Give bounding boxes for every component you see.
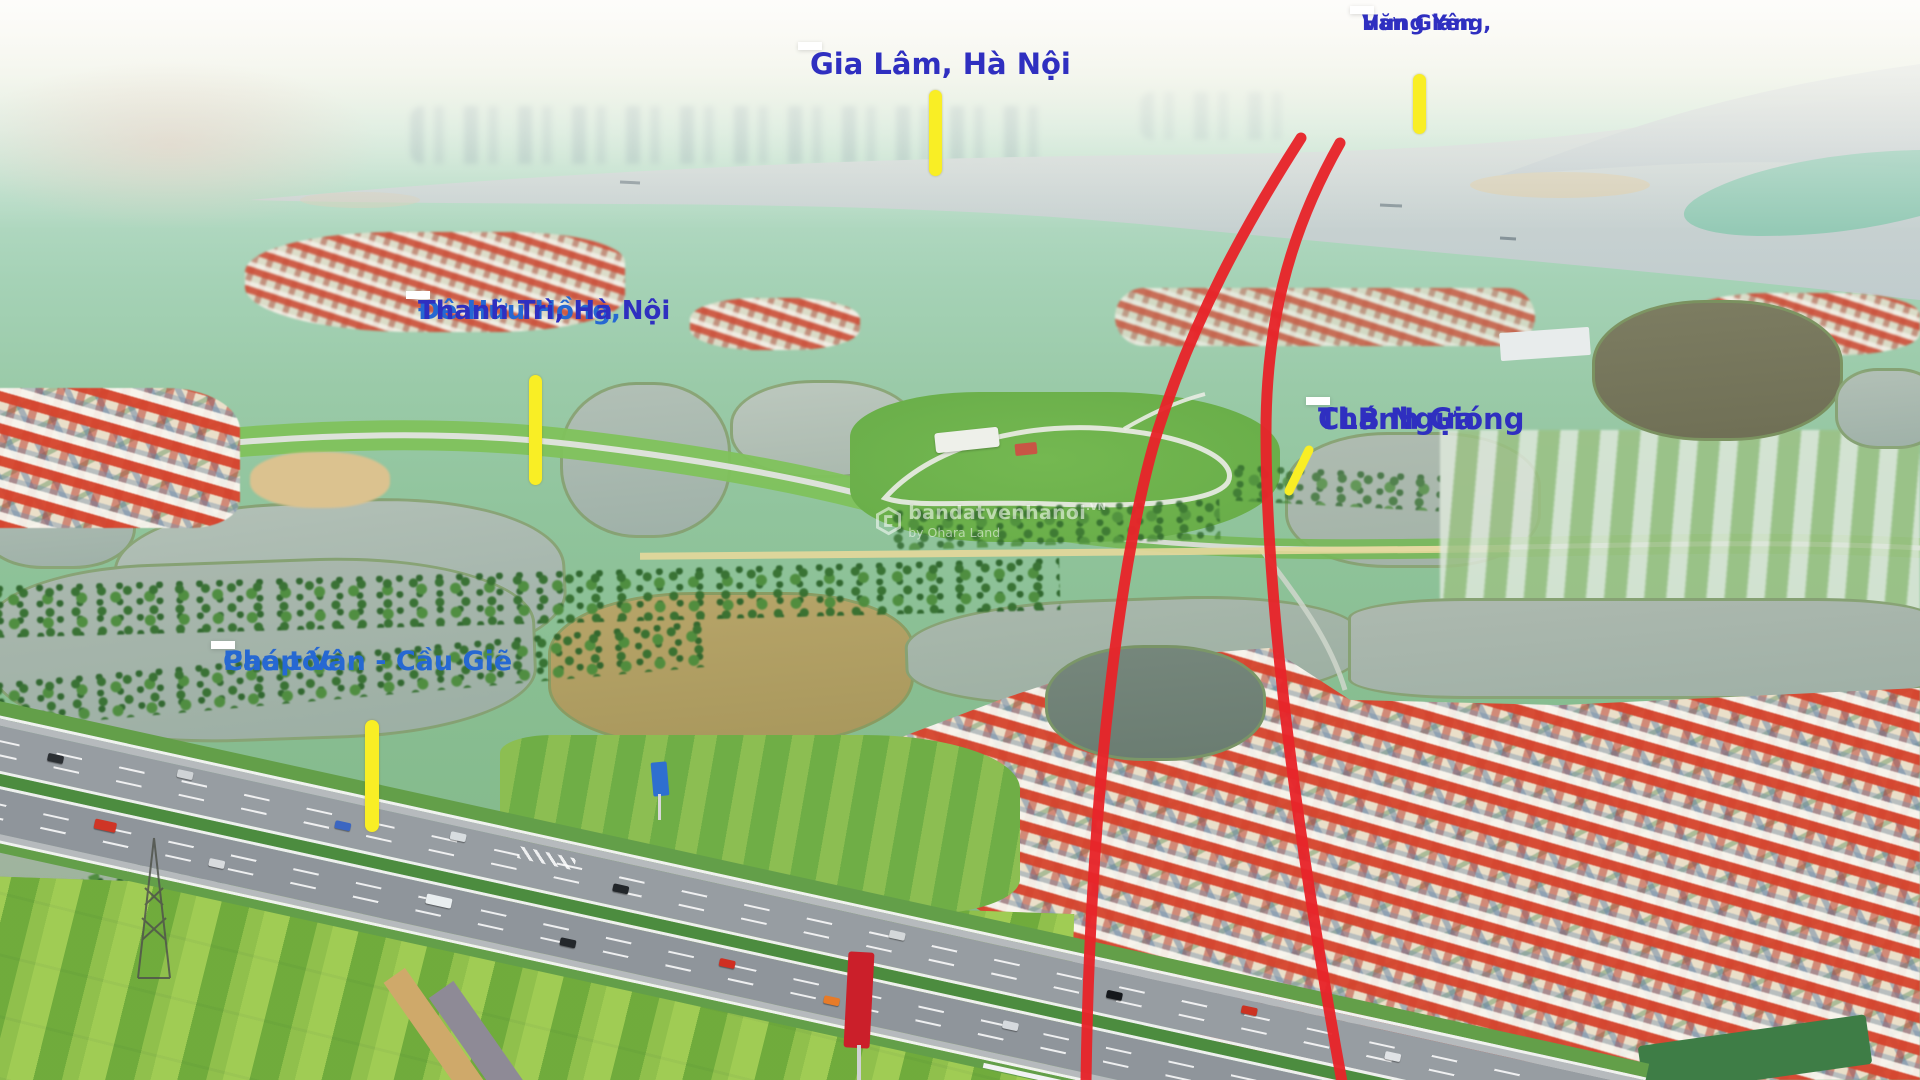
watermark-tld: .VN	[1086, 502, 1106, 513]
blue-billboard	[651, 761, 670, 796]
industrial-shed	[1499, 327, 1591, 361]
pond-far-right	[1835, 368, 1920, 449]
label-van-giang: Văn Giang, Hưng Yên	[1350, 6, 1374, 14]
billboard-pole	[857, 1045, 861, 1080]
sandbar-small	[300, 192, 420, 208]
label-text: Gia Lâm, Hà Nội	[810, 46, 1071, 82]
label-de-huu-hong: Đê Hữu Hồng, Thanh Trì, Hà Nội	[406, 291, 430, 299]
pointer-line-de-huu-hong	[529, 375, 542, 485]
riverbank-village	[1115, 288, 1535, 346]
label-text: Pháp Vân - Cầu Giẽ	[223, 645, 512, 679]
village-top-left	[0, 388, 240, 528]
label-text: Hưng Yên	[1362, 10, 1474, 36]
haze-pink-left	[0, 60, 380, 230]
watermark-byline: by Ohara Land	[908, 525, 1106, 540]
blue-billboard-pole	[658, 794, 661, 820]
right-fields-industrial	[1440, 430, 1920, 620]
river-peninsula	[1684, 150, 1920, 236]
label-gia-lam: Gia Lâm, Hà Nội	[798, 42, 822, 50]
boat	[1500, 238, 1516, 239]
red-billboard	[844, 951, 875, 1048]
aerial-photo-canvas: bandatvenhanoi.VN by Ohara Land Gia Lâm,…	[0, 0, 1920, 1080]
pond	[560, 382, 731, 538]
sandbar	[1470, 172, 1650, 198]
pointer-line-van-giang	[1413, 74, 1426, 134]
dark-pond-right	[1592, 300, 1843, 441]
watermark-brand: bandatvenhanoi	[908, 502, 1086, 524]
label-text: Thanh Trì, Hà Nội	[418, 295, 670, 328]
boat	[620, 182, 640, 183]
boat	[1380, 205, 1402, 206]
sandy-excavation	[250, 452, 390, 508]
watermark: bandatvenhanoi.VN by Ohara Land	[876, 502, 1106, 540]
pointer-line-cao-toc	[365, 720, 379, 832]
distant-city-skyline	[410, 106, 1050, 164]
village-pond	[1045, 645, 1266, 761]
park-red-roof	[1014, 442, 1037, 456]
label-cao-toc: Cao tốc Pháp Vân - Cầu Giẽ	[211, 641, 235, 649]
label-clb-ngua: CLB Ngựa Thánh Gióng	[1306, 397, 1330, 405]
pointer-line-gia-lam	[929, 90, 942, 176]
river-inlet-strip	[1348, 598, 1920, 699]
far-village	[690, 298, 860, 350]
hexagon-logo-icon	[876, 502, 901, 540]
river-bend-north	[1500, 64, 1920, 175]
distant-city-skyline-right	[1140, 92, 1290, 140]
label-text: Thánh Gióng	[1318, 401, 1524, 437]
